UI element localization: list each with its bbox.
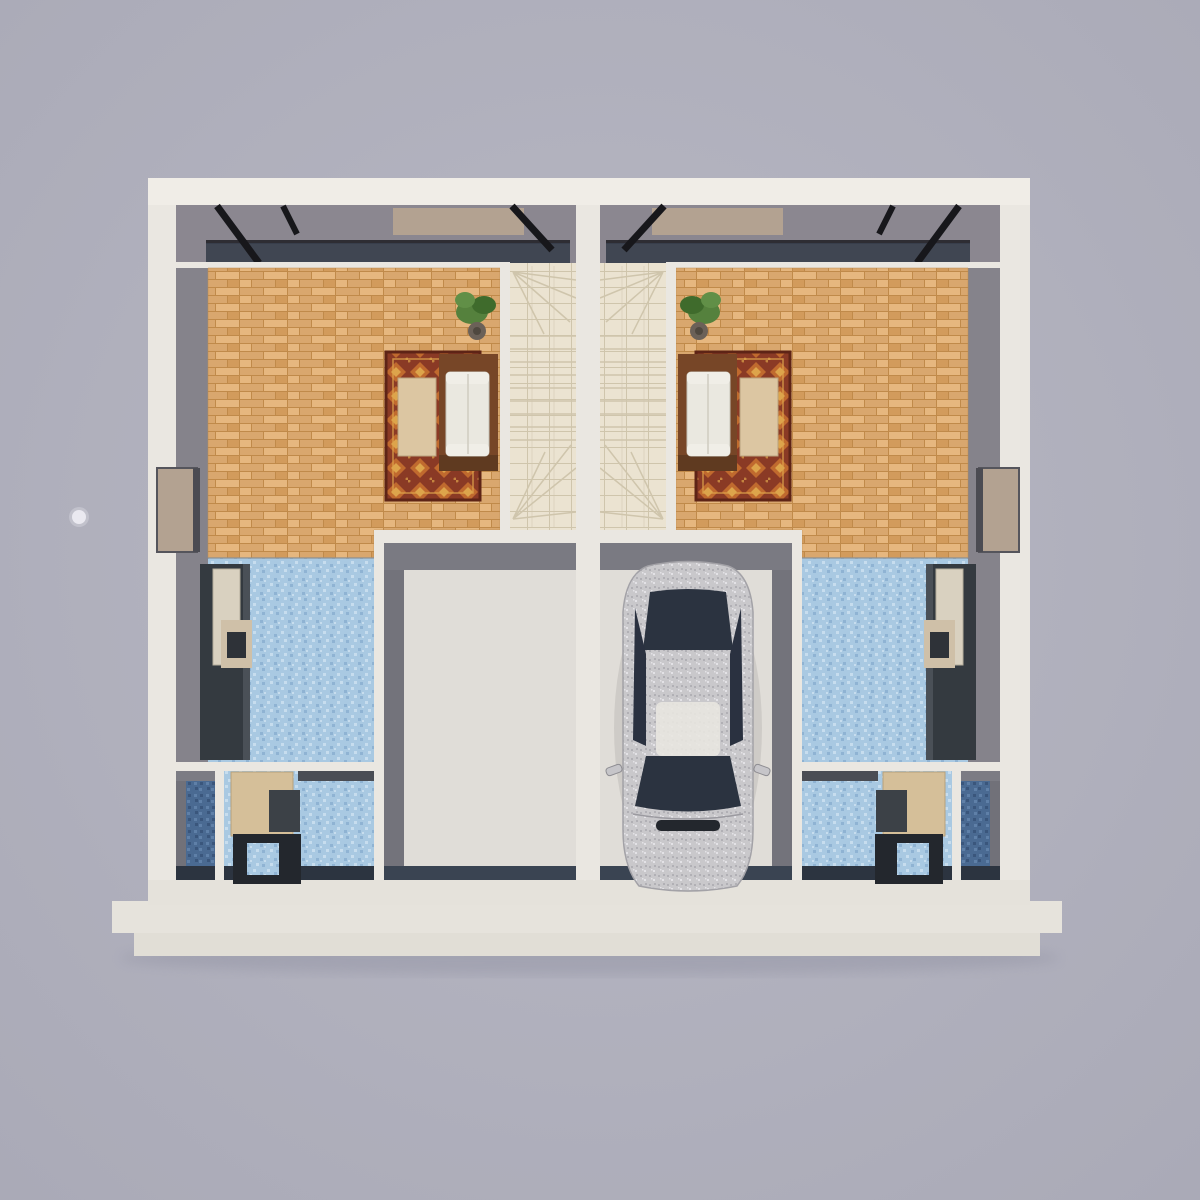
garage-inner-face-top xyxy=(384,543,576,570)
side-window xyxy=(157,468,197,552)
kitchen-counter-inset xyxy=(227,632,246,658)
outer-wall-north-band xyxy=(148,178,1030,205)
car-rear-window xyxy=(643,589,733,650)
floor-plan-render xyxy=(0,0,1200,1200)
sofa-platform-shelf xyxy=(439,455,498,471)
garage-floor xyxy=(404,570,576,866)
desk-appliance xyxy=(269,790,300,832)
foundation-slab-lower xyxy=(134,933,1040,956)
staircase xyxy=(510,263,576,530)
bathroom-dark-strip xyxy=(176,866,215,880)
coffee-table xyxy=(398,378,436,456)
desk-chair-inset xyxy=(247,843,279,875)
floor-plan-canvas xyxy=(0,0,1200,1200)
stair-partition-wall xyxy=(500,263,510,530)
unit-left xyxy=(157,205,576,884)
garage-inner-face-side xyxy=(384,543,404,868)
garage-door-threshold xyxy=(384,866,576,880)
garage-front-wall xyxy=(374,530,576,543)
bathroom-wall-face-left xyxy=(176,771,186,880)
garage-side-wall xyxy=(374,543,384,880)
car-grille xyxy=(656,820,720,831)
party-wall xyxy=(576,205,600,880)
car-windshield xyxy=(635,756,741,812)
study-counter xyxy=(298,771,374,781)
car-roof-panel xyxy=(656,702,720,756)
interior-wall-horizontal xyxy=(176,762,374,771)
interior-wall-vertical xyxy=(215,771,224,880)
light-dot xyxy=(72,510,86,524)
kitchen-threshold xyxy=(208,557,374,559)
entry-paving xyxy=(393,208,524,235)
bathroom-wall-face-top xyxy=(176,771,215,781)
car xyxy=(605,562,771,893)
foundation-slab-upper xyxy=(112,901,1062,933)
side-window-frame xyxy=(193,468,200,552)
